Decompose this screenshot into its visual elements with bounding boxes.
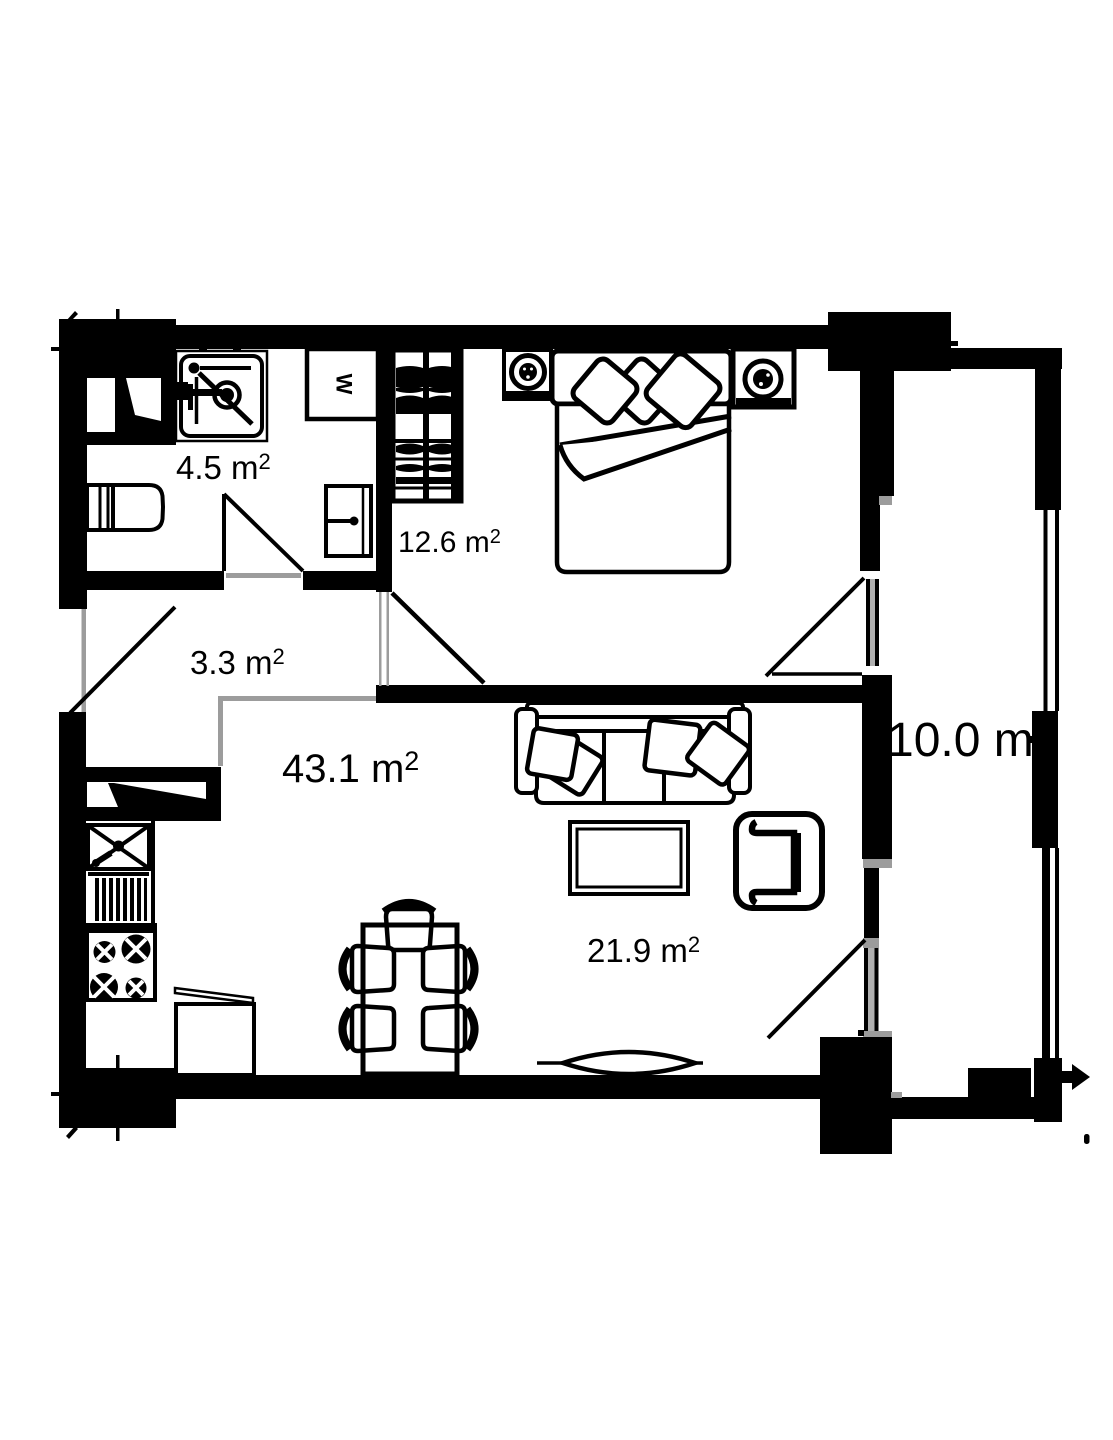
svg-text:4.5 m2: 4.5 m2	[176, 449, 271, 486]
svg-text:43.1 m2: 43.1 m2	[282, 746, 419, 791]
svg-text:21.9 m2: 21.9 m2	[587, 932, 700, 969]
svg-text:W: W	[332, 374, 357, 395]
svg-text:12.6 m2: 12.6 m2	[398, 526, 501, 559]
svg-text:3.3 m2: 3.3 m2	[190, 644, 285, 681]
svg-text:10.0 m: 10.0 m	[887, 714, 1034, 767]
